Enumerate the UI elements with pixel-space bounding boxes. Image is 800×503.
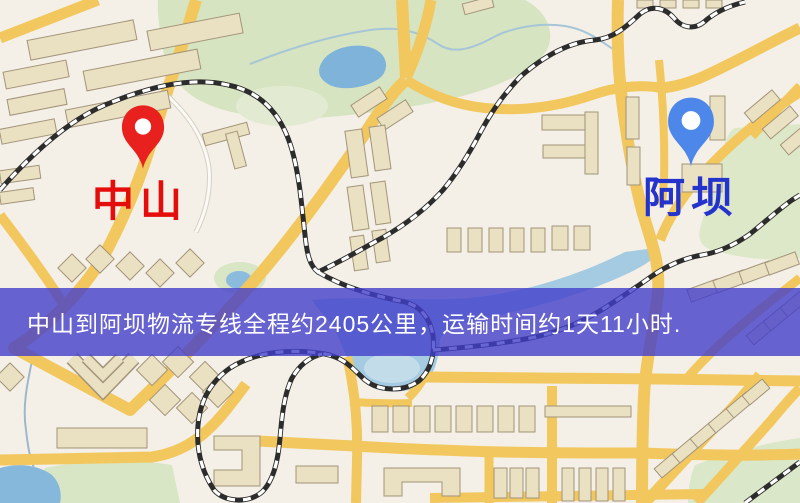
destination-pin-hole <box>682 111 701 130</box>
origin-pin-icon[interactable] <box>120 102 166 172</box>
origin-pin-body <box>122 105 164 168</box>
map-canvas: 中山 阿坝 中山到阿坝物流专线全程约2405公里，运输时间约1天11小时. <box>0 0 800 503</box>
route-banner-text: 中山到阿坝物流专线全程约2405公里，运输时间约1天11小时. <box>0 305 681 339</box>
map-artwork <box>0 0 800 503</box>
origin-pin-hole <box>135 118 151 134</box>
origin-label: 中山 <box>92 180 188 224</box>
route-banner: 中山到阿坝物流专线全程约2405公里，运输时间约1天11小时. <box>0 288 800 356</box>
destination-pin-icon[interactable] <box>666 95 716 169</box>
destination-pin-body <box>668 98 714 167</box>
destination-label: 阿坝 <box>643 176 739 220</box>
